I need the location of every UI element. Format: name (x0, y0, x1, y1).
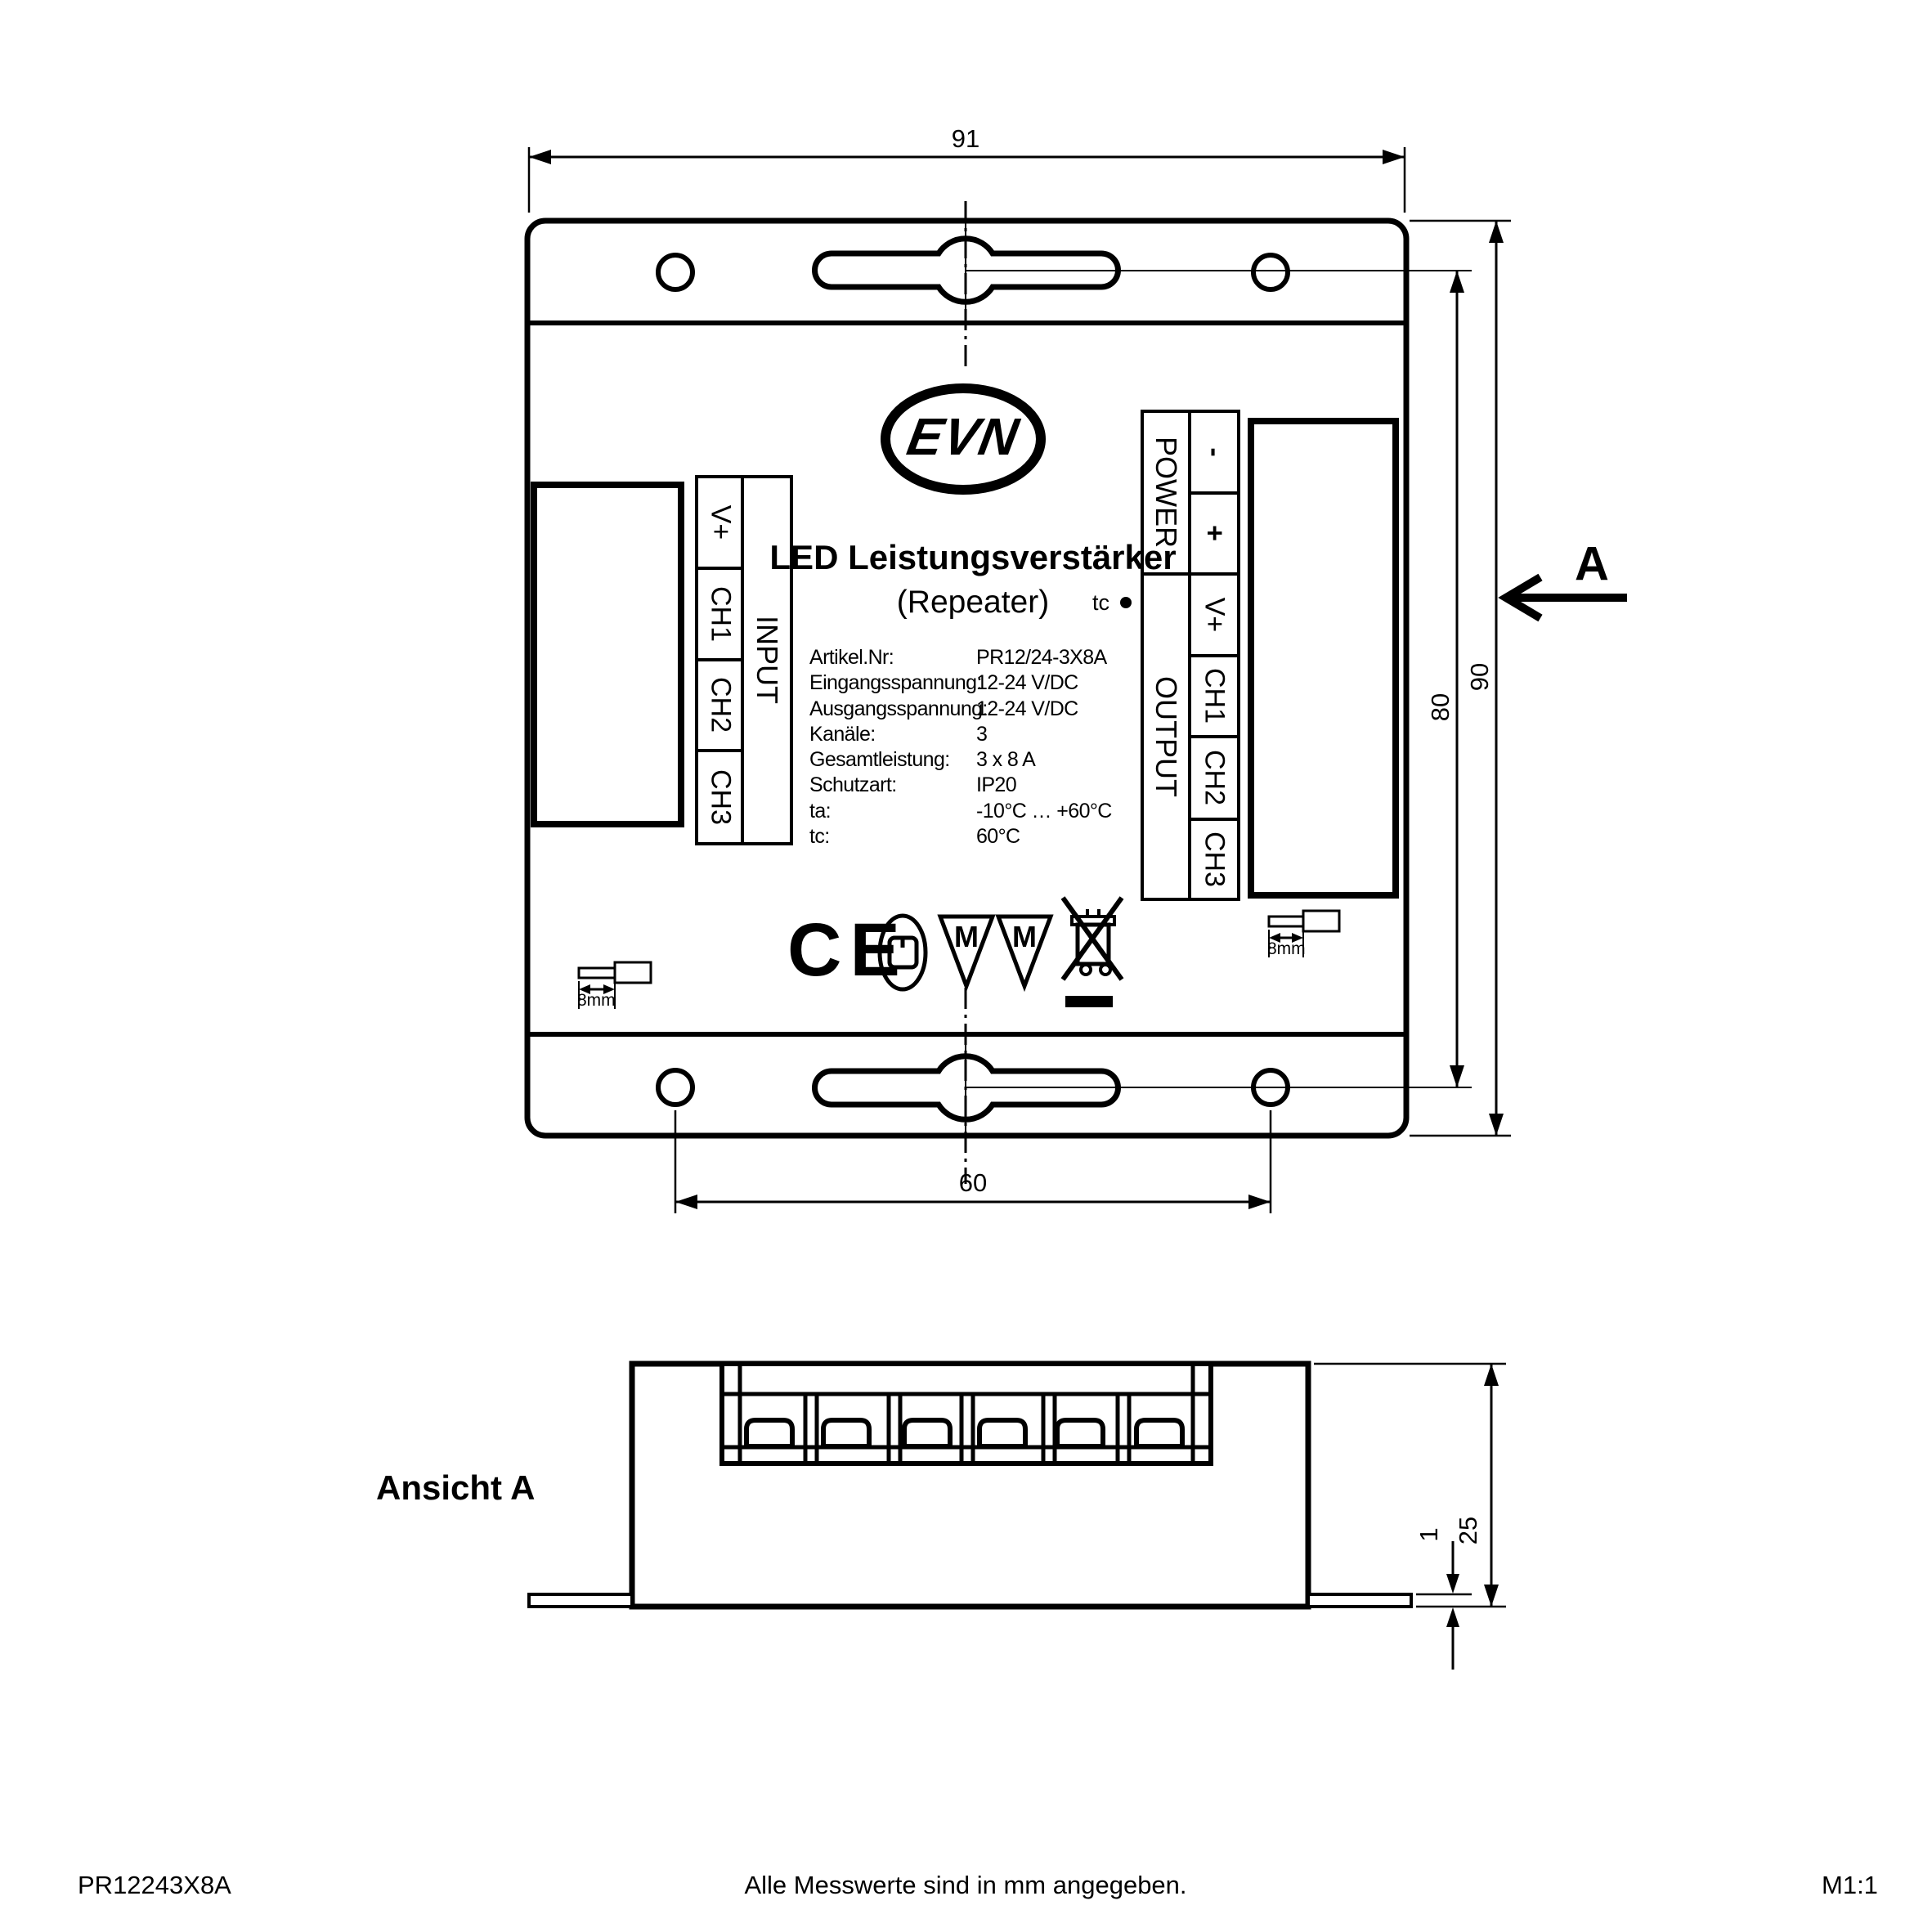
input-terminal-vplus: V+ (705, 505, 737, 540)
spec-value: 3 x 8 A (976, 747, 1035, 773)
terminal-opening (904, 1420, 950, 1446)
mm-icon-letter-1: M (954, 920, 979, 954)
dim-90-arrowhead (1489, 1114, 1504, 1136)
mm-icon-letter-2: M (1012, 920, 1037, 954)
side-view-flange-left (529, 1594, 632, 1607)
mounting-hole-top-right (1253, 255, 1288, 289)
input-terminal-ch3: CH3 (705, 769, 737, 825)
output-terminal-ch1: CH1 (1199, 668, 1230, 724)
spec-label: ta: (809, 799, 976, 824)
output-terminal-ch2: CH2 (1199, 750, 1230, 805)
spec-label: Gesamtleistung: (809, 747, 976, 773)
output-terminal-vplus: V+ (1199, 598, 1230, 633)
spec-row: tc:60°C (809, 824, 1112, 849)
mounting-hole-bottom-left (658, 1070, 693, 1105)
dim-80-label: 80 (1426, 693, 1455, 721)
output-terminal-ch3: CH3 (1199, 832, 1230, 887)
spec-label: Ausgangsspannung: (809, 697, 976, 722)
footer-article-number: PR12243X8A (78, 1871, 231, 1900)
dim-25-arrowhead (1484, 1585, 1499, 1607)
terminal-opening (1136, 1420, 1182, 1446)
dim-1-arrowhead-up (1446, 1607, 1459, 1627)
tc-point-marker (1120, 597, 1132, 608)
spec-row: Ausgangsspannung:12-24 V/DC (809, 697, 1112, 722)
weee-bin-icon-bar (1065, 996, 1113, 1007)
dim-60-label: 60 (959, 1168, 987, 1198)
power-terminal-minus: - (1199, 447, 1230, 456)
dim-25-label: 25 (1454, 1517, 1483, 1544)
spec-label: Eingangsspannung: (809, 670, 976, 696)
datasheet-drawing: 91 90 80 60 25 1 A EVN LED Leistungsvers… (0, 0, 1932, 1932)
terminal-opening (823, 1420, 869, 1446)
dim-90-arrowhead (1489, 221, 1504, 243)
side-view-title: Ansicht A (376, 1468, 535, 1508)
output-block-header: OUTPUT (1149, 676, 1183, 797)
spec-value: 12-24 V/DC (976, 670, 1078, 696)
spec-row: Kanäle:3 (809, 722, 1112, 747)
ce-mark-label: CE (787, 908, 908, 993)
spec-row: Eingangsspannung:12-24 V/DC (809, 670, 1112, 696)
drawing-lineart (0, 0, 1932, 1932)
wire-strip-icon-right-tube (1269, 917, 1303, 926)
dim-91-label: 91 (952, 124, 979, 154)
power-block-header: POWER (1149, 437, 1183, 548)
mounting-hole-top-left (658, 255, 693, 289)
dim-1-label: 1 (1414, 1527, 1444, 1541)
dim-60-arrowhead (1248, 1195, 1271, 1209)
dim-60-arrowhead (675, 1195, 697, 1209)
dim-91-arrowhead (529, 150, 551, 164)
dim-25-arrowhead (1484, 1364, 1499, 1386)
strip-length-label-right: 8mm (1267, 939, 1306, 959)
spec-value: PR12/24-3X8A (976, 645, 1107, 670)
output-connector-body (1251, 421, 1396, 895)
terminal-opening (746, 1420, 792, 1446)
dim-1-arrowhead-down (1446, 1574, 1459, 1594)
dim-91-arrowhead (1383, 150, 1405, 164)
terminal-opening (979, 1420, 1025, 1446)
spec-label: Schutzart: (809, 773, 976, 798)
wire-strip-icon-right-body (1303, 911, 1339, 931)
dim-80-arrowhead (1450, 271, 1464, 293)
input-block-header: INPUT (750, 616, 784, 704)
spec-value: 60°C (976, 824, 1020, 849)
spec-label: Kanäle: (809, 722, 976, 747)
input-terminal-ch1: CH1 (705, 586, 737, 642)
wire-strip-icon-left-tube (579, 968, 615, 978)
spec-table: Artikel.Nr:PR12/24-3X8A Eingangsspannung… (809, 645, 1112, 849)
spec-value: 12-24 V/DC (976, 697, 1078, 722)
spec-value: IP20 (976, 773, 1016, 798)
view-a-label: A (1575, 537, 1609, 592)
input-terminal-ch2: CH2 (705, 677, 737, 733)
dim-90-label: 90 (1465, 663, 1495, 691)
spec-row: ta:-10°C … +60°C (809, 799, 1112, 824)
evn-logo-text: EVN (903, 406, 1024, 467)
wire-strip-icon-left-body (615, 962, 651, 983)
dim-80-arrowhead (1450, 1065, 1464, 1087)
footer-scale: M1:1 (1822, 1871, 1878, 1900)
spec-label: Artikel.Nr: (809, 645, 976, 670)
input-connector-body (534, 485, 681, 824)
product-subtitle: (Repeater) (897, 585, 1049, 621)
spec-row: Gesamtleistung:3 x 8 A (809, 747, 1112, 773)
spec-value: 3 (976, 722, 987, 747)
footer-note: Alle Messwerte sind in mm angegeben. (744, 1871, 1186, 1900)
product-title: LED Leistungsverstärker (769, 538, 1176, 577)
side-view-flange-right (1308, 1594, 1411, 1607)
terminal-opening (1057, 1420, 1103, 1446)
spec-row: Artikel.Nr:PR12/24-3X8A (809, 645, 1112, 670)
spec-row: Schutzart:IP20 (809, 773, 1112, 798)
tc-label: tc (1092, 590, 1109, 616)
spec-label: tc: (809, 824, 976, 849)
power-terminal-plus: + (1199, 525, 1230, 541)
spec-value: -10°C … +60°C (976, 799, 1112, 824)
strip-length-label-left: 8mm (577, 991, 616, 1011)
